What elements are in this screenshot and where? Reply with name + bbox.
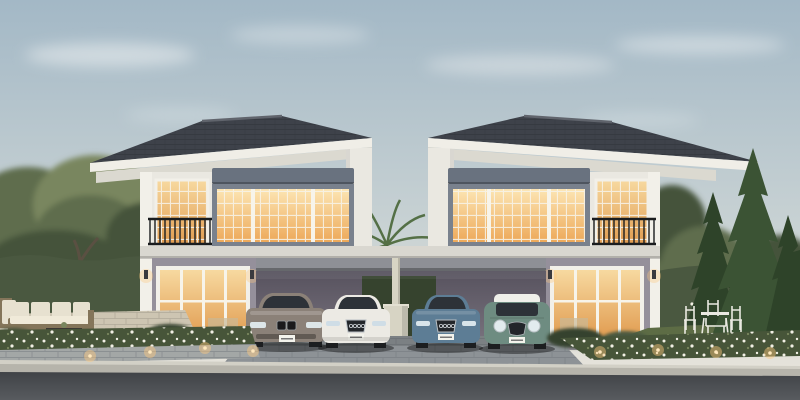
window-mullion	[487, 189, 491, 242]
wall-sconce-right	[647, 269, 661, 283]
window-mullion	[251, 189, 255, 242]
plate-text	[511, 340, 523, 342]
light-core	[148, 350, 152, 354]
mini-grille	[508, 322, 526, 336]
door-divider	[618, 270, 621, 340]
cloud	[615, 36, 785, 54]
kidney-grille	[287, 321, 296, 330]
roller-shutter-box	[212, 168, 354, 184]
carport-ceiling	[256, 271, 400, 279]
headlight	[462, 321, 476, 326]
headlight	[326, 321, 340, 326]
render-canvas: Dusk architectural rendering of two mirr…	[0, 0, 800, 400]
windshield	[338, 297, 378, 310]
headlight	[372, 321, 386, 326]
dining-table-top	[701, 312, 729, 315]
sconce-body	[652, 270, 656, 279]
light-core	[203, 346, 207, 350]
garden-light	[652, 344, 664, 356]
light-core	[656, 348, 660, 352]
garden-light	[710, 346, 722, 358]
table-plant	[61, 322, 67, 328]
post-shade	[398, 258, 400, 308]
carport-ceiling	[400, 271, 546, 279]
window-grid	[217, 189, 349, 242]
headlight	[306, 322, 322, 328]
cloud	[230, 26, 370, 44]
road	[0, 372, 800, 400]
light-core	[251, 349, 255, 353]
hood-highlight	[250, 311, 322, 315]
window-mullion	[311, 189, 315, 242]
door-rail	[554, 300, 640, 303]
cloud	[25, 43, 195, 67]
headlight	[416, 321, 430, 326]
kidney-grille	[277, 321, 286, 330]
light-core	[714, 350, 718, 354]
twin-houses-scene	[0, 0, 800, 400]
cloud	[425, 55, 615, 75]
round-headlight	[528, 320, 540, 332]
sofa-back-cushion	[31, 302, 50, 318]
windshield	[496, 303, 538, 316]
garden-light	[199, 342, 211, 354]
roller-shutter-box	[448, 168, 590, 184]
window-mullion	[547, 189, 551, 242]
garden-light	[594, 346, 606, 358]
headlight	[250, 322, 266, 328]
hood-highlight	[416, 311, 476, 315]
beam-shadow	[400, 268, 546, 271]
beam-shadow	[254, 268, 400, 271]
garden-light	[764, 347, 776, 359]
sofa-back-cushion	[52, 302, 71, 318]
light-core	[88, 354, 92, 358]
garden-light	[247, 345, 259, 357]
wall-sconce-left	[139, 269, 153, 283]
door-rail	[160, 300, 246, 303]
sofa-seat-cushion	[10, 316, 90, 324]
sofa-back-cushion	[73, 302, 90, 318]
garden-light	[84, 350, 96, 362]
car-mini	[479, 294, 555, 354]
sconce-body	[144, 270, 148, 279]
windshield	[428, 297, 466, 310]
sconce-body	[548, 270, 552, 279]
sconce-body	[250, 270, 254, 279]
plate-text	[440, 337, 452, 339]
light-core	[768, 351, 772, 355]
plate-text	[281, 338, 293, 340]
windshield	[262, 296, 310, 310]
door-divider	[596, 270, 599, 340]
light-core	[598, 350, 602, 354]
round-headlight	[494, 320, 506, 332]
sofa-back-cushion	[10, 302, 29, 318]
garden-light	[144, 346, 156, 358]
window-grid	[453, 189, 585, 242]
bumper-shade	[322, 337, 390, 341]
